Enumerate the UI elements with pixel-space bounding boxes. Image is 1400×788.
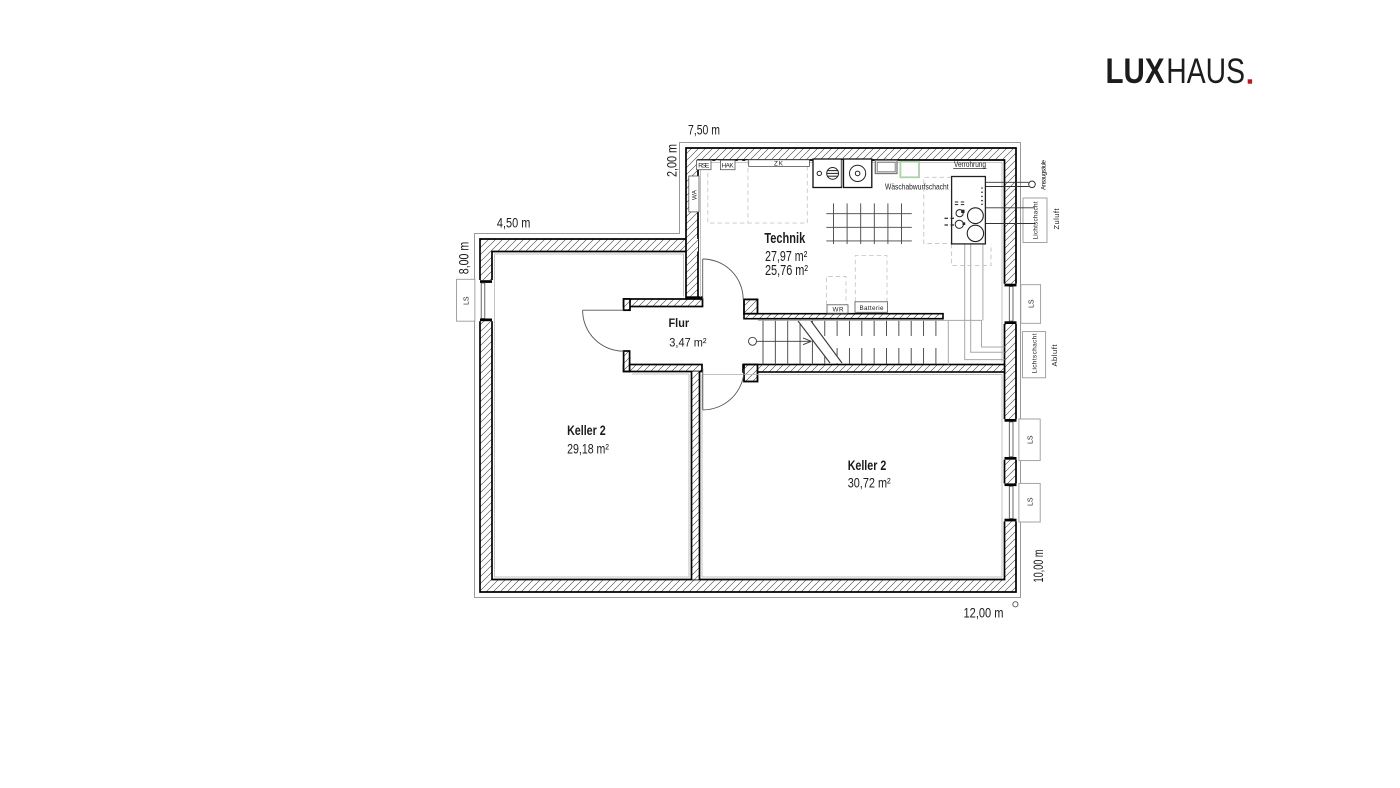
svg-text:12,00 m: 12,00 m — [964, 606, 1004, 622]
svg-text:ZK: ZK — [774, 161, 784, 168]
svg-text:10,00 m: 10,00 m — [1031, 550, 1047, 583]
svg-text:RSE: RSE — [698, 163, 709, 170]
svg-text:Keller 2: Keller 2 — [848, 458, 887, 473]
svg-text:Verrohrung: Verrohrung — [954, 160, 986, 169]
svg-text:LS: LS — [1028, 497, 1035, 506]
svg-text:25,76 m²: 25,76 m² — [765, 263, 808, 279]
svg-text:LS: LS — [464, 296, 471, 305]
svg-text:7,50 m: 7,50 m — [688, 123, 720, 139]
svg-text:Lichtschacht: Lichtschacht — [1032, 333, 1039, 373]
svg-text:Keller 2: Keller 2 — [567, 423, 606, 438]
svg-text:Technik: Technik — [764, 230, 805, 247]
svg-text:WR: WR — [833, 307, 844, 314]
svg-text:Wäschabwurfschacht: Wäschabwurfschacht — [885, 183, 949, 192]
svg-text:2,00 m: 2,00 m — [665, 144, 681, 177]
svg-text:Zuluft: Zuluft — [1052, 208, 1061, 230]
svg-text:29,18 m²: 29,18 m² — [567, 442, 609, 457]
svg-text:Ansaugsäule: Ansaugsäule — [1041, 160, 1048, 190]
svg-text:LUX: LUX — [1106, 51, 1165, 91]
svg-text:3,47 m²: 3,47 m² — [669, 336, 706, 350]
svg-text:30,72 m²: 30,72 m² — [848, 476, 891, 491]
svg-text:4,50 m: 4,50 m — [497, 216, 530, 232]
svg-text:LS: LS — [1028, 435, 1035, 444]
svg-text:Abluft: Abluft — [1050, 344, 1059, 367]
svg-text:WA: WA — [692, 189, 699, 200]
svg-text:HAK: HAK — [722, 163, 735, 170]
svg-text:Flur: Flur — [669, 316, 690, 330]
svg-text:Batterie: Batterie — [860, 305, 884, 312]
svg-text:8,00 m: 8,00 m — [457, 242, 473, 274]
svg-text:HAUS: HAUS — [1166, 51, 1245, 91]
svg-text:Lichtschacht: Lichtschacht — [1033, 201, 1040, 239]
svg-text:LS: LS — [1029, 299, 1036, 308]
